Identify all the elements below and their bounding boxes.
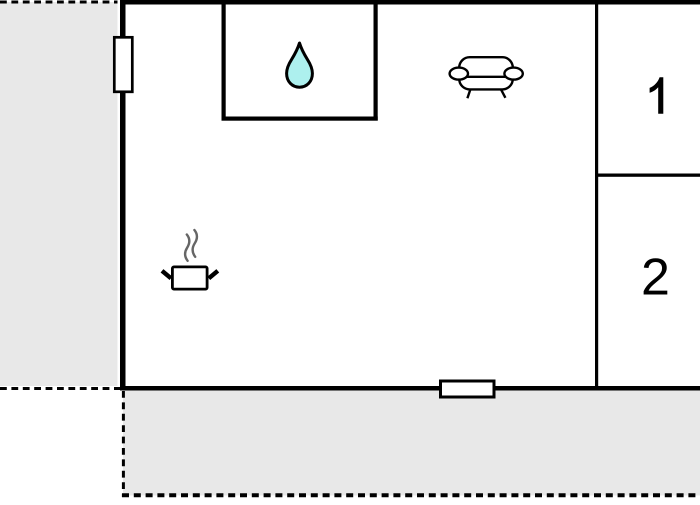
svg-text:2: 2 xyxy=(641,249,670,307)
